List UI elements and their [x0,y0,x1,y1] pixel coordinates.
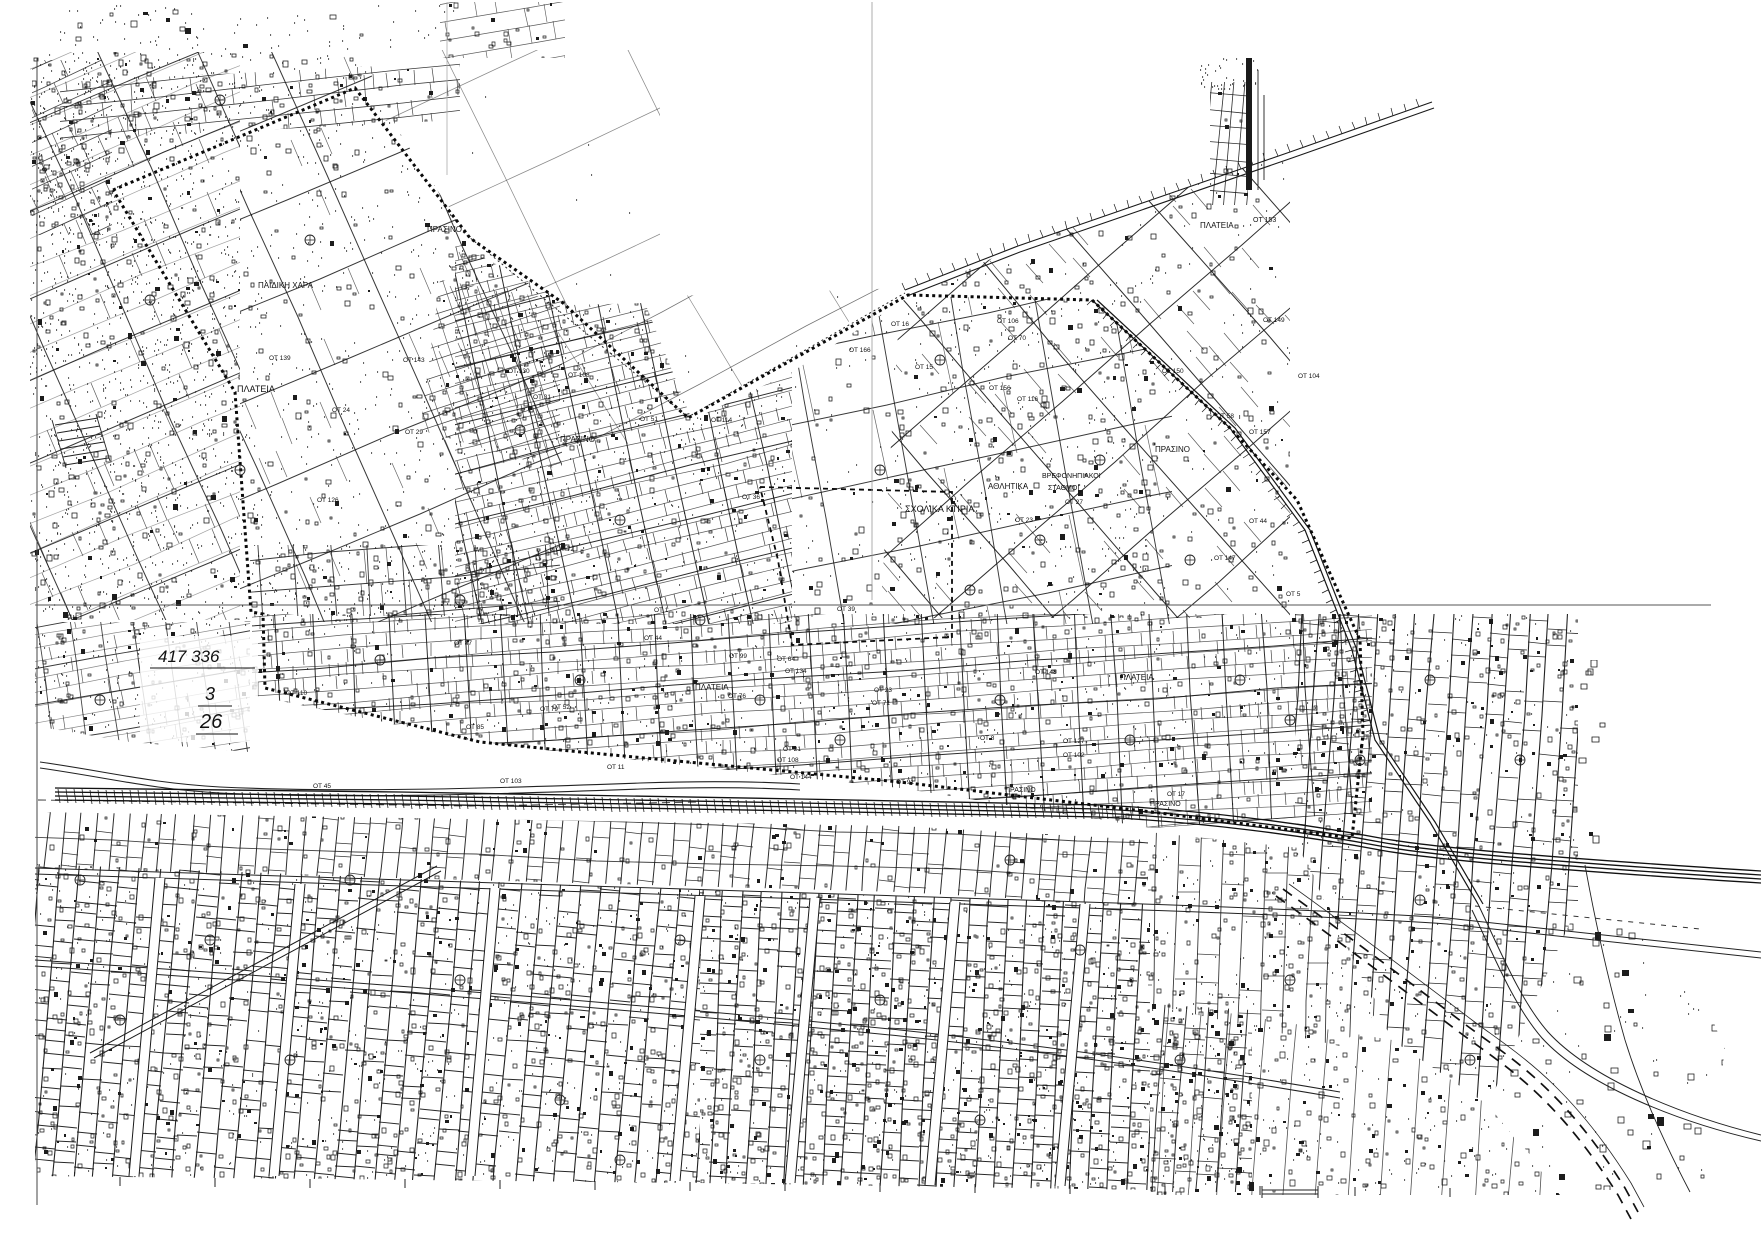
svg-text:ΟΤ 91: ΟΤ 91 [896,779,914,786]
svg-text:ΟΤ 127: ΟΤ 127 [1063,738,1085,745]
svg-text:ΟΤ 149: ΟΤ 149 [1263,317,1285,324]
svg-text:ΟΤ 29: ΟΤ 29 [405,429,423,436]
svg-text:ΟΤ 64: ΟΤ 64 [777,656,795,663]
svg-text:ΟΤ 24: ΟΤ 24 [332,407,350,414]
svg-text:ΠΡΑΣΙΝΟ: ΠΡΑΣΙΝΟ [1150,801,1181,808]
svg-text:ΟΤ 16: ΟΤ 16 [891,321,909,328]
svg-text:ΠΛΑΤΕΙΑ: ΠΛΑΤΕΙΑ [237,384,275,394]
svg-text:ΣΧΟΛΙΚΑ ΚΤΙΡΙΑ: ΣΧΟΛΙΚΑ ΚΤΙΡΙΑ [905,504,974,514]
svg-text:ΟΤ 103: ΟΤ 103 [500,778,522,785]
svg-text:ΟΤ 39: ΟΤ 39 [837,606,855,613]
svg-text:ΠΑΙΔΙΚΗ ΧΑΡΑ: ΠΑΙΔΙΚΗ ΧΑΡΑ [258,281,314,290]
svg-text:ΟΤ 106: ΟΤ 106 [997,318,1019,325]
svg-text:ΟΤ 156: ΟΤ 156 [989,385,1011,392]
svg-text:ΣΤΑΘΜΟΙ: ΣΤΑΘΜΟΙ [1048,485,1079,492]
svg-text:ΟΤ 27: ΟΤ 27 [1065,499,1083,506]
svg-text:ΠΡΑΣΙΝΟ: ΠΡΑΣΙΝΟ [560,435,595,444]
svg-text:ΒΡΕΦΟΝΗΠΙΑΚΟΙ: ΒΡΕΦΟΝΗΠΙΑΚΟΙ [1042,473,1101,480]
svg-text:3: 3 [205,684,215,704]
svg-text:ΟΤ 31: ΟΤ 31 [533,394,551,401]
svg-text:ΟΤ 99: ΟΤ 99 [729,653,747,660]
svg-text:ΟΤ 153: ΟΤ 153 [1253,217,1276,224]
svg-text:ΟΤ 110: ΟΤ 110 [286,690,307,697]
svg-text:ΟΤ 102: ΟΤ 102 [1063,752,1085,759]
svg-text:ΟΤ 143: ΟΤ 143 [403,357,425,364]
svg-text:ΟΤ 44: ΟΤ 44 [1249,518,1267,525]
svg-text:ΟΤ 79: ΟΤ 79 [540,706,558,713]
svg-text:ΠΡΑΣΙΝΟ: ΠΡΑΣΙΝΟ [1155,445,1190,454]
svg-text:ΠΛΑΤΕΙΑ: ΠΛΑΤΕΙΑ [1120,673,1154,682]
svg-text:ΠΡΑΣΙΝΟ: ΠΡΑΣΙΝΟ [1005,787,1036,794]
svg-text:ΟΤ 1: ΟΤ 1 [654,607,669,614]
svg-text:ΑΘΛΗΤΙΚΑ: ΑΘΛΗΤΙΚΑ [988,482,1029,491]
svg-text:ΟΤ 21: ΟΤ 21 [783,746,801,753]
svg-text:ΟΤ 147: ΟΤ 147 [1214,555,1236,562]
svg-text:ΟΤ 87: ΟΤ 87 [454,640,472,647]
svg-text:ΟΤ 114: ΟΤ 114 [711,417,732,424]
svg-text:ΠΛΑΤΕΙΑ: ΠΛΑΤΕΙΑ [1200,221,1234,230]
svg-text:ΟΤ 116: ΟΤ 116 [1017,396,1038,403]
svg-text:ΟΤ 23: ΟΤ 23 [874,687,892,694]
svg-text:ΟΤ 70: ΟΤ 70 [1008,335,1026,342]
svg-text:ΟΤ 150: ΟΤ 150 [1162,368,1184,375]
svg-text:ΟΤ 23: ΟΤ 23 [1015,517,1033,524]
svg-text:417 336: 417 336 [158,647,220,666]
svg-text:ΟΤ 71: ΟΤ 71 [872,700,890,707]
svg-text:ΟΤ 51: ΟΤ 51 [640,416,658,423]
svg-text:ΟΤ 8: ΟΤ 8 [980,735,995,742]
svg-text:ΟΤ 126: ΟΤ 126 [317,497,339,504]
svg-text:ΟΤ 157: ΟΤ 157 [1249,429,1271,436]
svg-text:26: 26 [199,711,223,733]
svg-text:ΟΤ 104: ΟΤ 104 [1298,373,1320,380]
svg-text:ΟΤ 108: ΟΤ 108 [568,372,590,379]
svg-text:ΟΤ 15: ΟΤ 15 [915,364,933,371]
svg-text:ΟΤ 85: ΟΤ 85 [466,724,484,731]
svg-text:ΟΤ 58: ΟΤ 58 [1216,413,1234,420]
svg-text:ΟΤ 5: ΟΤ 5 [1286,591,1301,598]
svg-text:ΟΤ 17: ΟΤ 17 [1167,791,1185,798]
svg-text:ΟΤ 44: ΟΤ 44 [644,635,662,642]
svg-text:ΟΤ 11: ΟΤ 11 [607,764,625,771]
svg-text:ΟΤ 36: ΟΤ 36 [742,494,760,501]
svg-text:ΠΛΑΤΕΙΑ: ΠΛΑΤΕΙΑ [695,683,729,692]
svg-text:ΟΤ 108: ΟΤ 108 [777,757,799,764]
svg-text:ΟΤ 144: ΟΤ 144 [790,774,812,781]
svg-text:ΟΤ 134: ΟΤ 134 [785,668,807,675]
svg-text:ΟΤ 166: ΟΤ 166 [849,347,871,354]
svg-text:ΟΤ 45: ΟΤ 45 [313,783,331,790]
svg-text:ΟΤ 130: ΟΤ 130 [508,368,530,375]
svg-text:ΟΤ 72: ΟΤ 72 [556,546,574,553]
svg-text:ΠΡΑΣΙΝΟ: ΠΡΑΣΙΝΟ [427,225,462,234]
svg-text:ΟΤ 148: ΟΤ 148 [1035,669,1057,676]
svg-text:ΟΤ 139: ΟΤ 139 [269,355,291,362]
svg-text:ΟΤ 76: ΟΤ 76 [728,693,746,700]
